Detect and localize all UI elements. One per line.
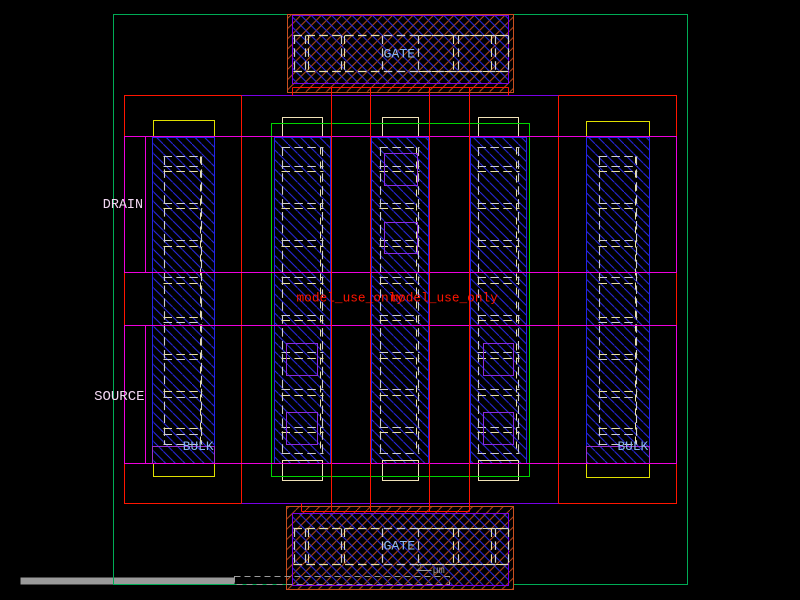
svg-text:DRAIN: DRAIN bbox=[103, 198, 143, 213]
svg-text:model_use_only: model_use_only bbox=[390, 291, 498, 306]
svg-text:BULK: BULK bbox=[183, 439, 214, 454]
svg-text:GATE: GATE bbox=[384, 47, 416, 62]
svg-text:model_use_only: model_use_only bbox=[297, 291, 405, 306]
svg-text:SOURCE: SOURCE bbox=[94, 389, 144, 405]
svg-text:BULK: BULK bbox=[618, 439, 649, 454]
svg-text:2: 2 bbox=[417, 564, 422, 574]
svg-text:GATE: GATE bbox=[384, 539, 416, 554]
svg-text:μm: μm bbox=[433, 566, 445, 577]
